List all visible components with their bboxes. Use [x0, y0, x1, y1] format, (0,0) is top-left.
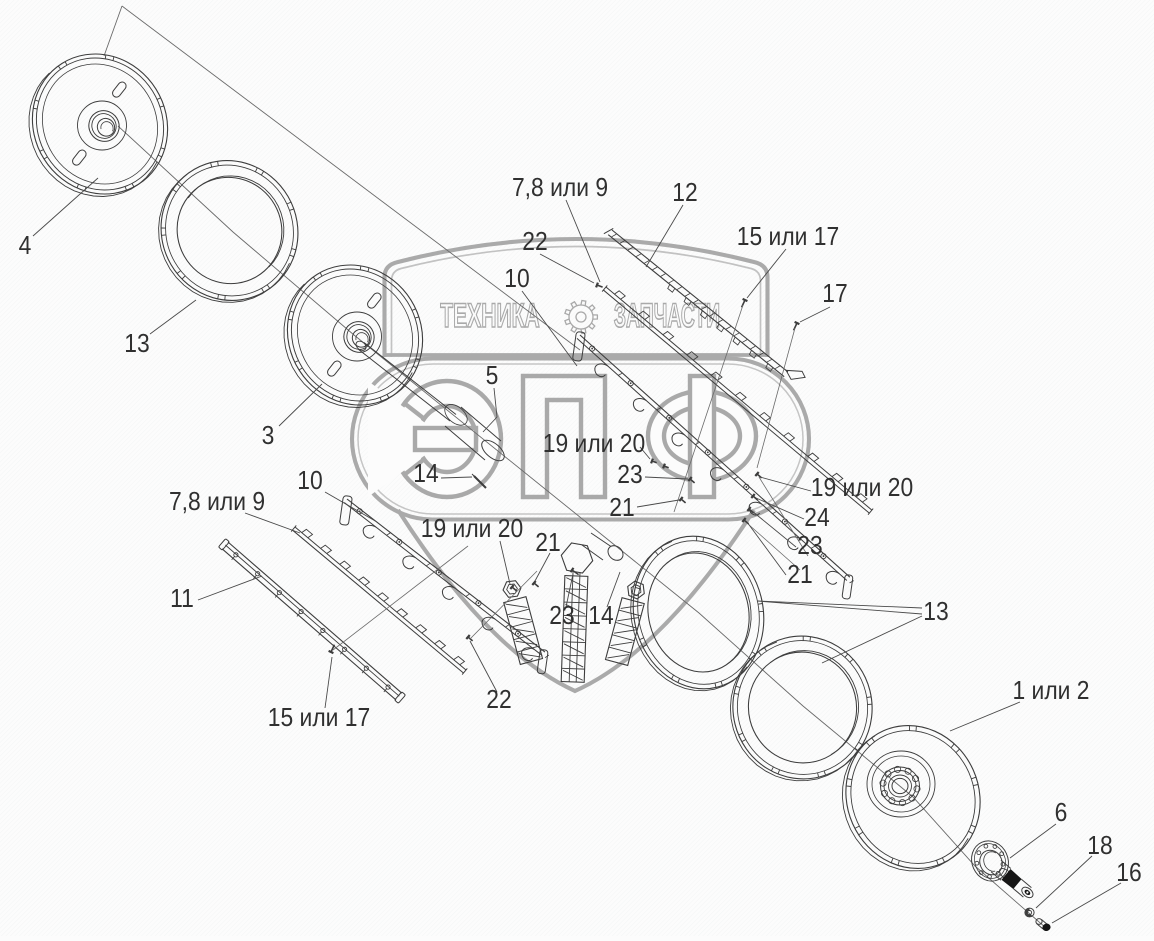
svg-text:15 или 17: 15 или 17 [268, 704, 370, 733]
svg-text:ТЕХНИКА: ТЕХНИКА [440, 296, 539, 334]
svg-text:23: 23 [617, 461, 642, 490]
svg-text:23: 23 [797, 532, 822, 561]
svg-text:1 или 2: 1 или 2 [1012, 677, 1089, 706]
svg-text:ЗАПЧАСТИ: ЗАПЧАСТИ [614, 296, 720, 334]
svg-text:11: 11 [170, 585, 194, 614]
svg-text:19 или 20: 19 или 20 [811, 474, 913, 503]
svg-text:14: 14 [413, 460, 438, 489]
svg-text:18: 18 [1087, 832, 1112, 861]
svg-text:14: 14 [588, 602, 613, 631]
svg-text:17: 17 [822, 280, 847, 309]
svg-text:19 или 20: 19 или 20 [421, 515, 523, 544]
svg-text:13: 13 [923, 598, 948, 627]
svg-text:5: 5 [486, 362, 499, 391]
svg-text:21: 21 [787, 561, 812, 590]
svg-text:4: 4 [19, 232, 32, 261]
svg-text:10: 10 [504, 265, 529, 294]
svg-text:7,8 или 9: 7,8 или 9 [169, 488, 265, 517]
svg-text:16: 16 [1116, 859, 1141, 888]
svg-text:23: 23 [549, 602, 574, 631]
svg-text:21: 21 [609, 494, 634, 523]
svg-text:19 или 20: 19 или 20 [543, 430, 645, 459]
svg-text:7,8 или 9: 7,8 или 9 [512, 174, 608, 203]
svg-text:10: 10 [297, 467, 322, 496]
svg-text:24: 24 [804, 504, 829, 533]
svg-text:22: 22 [522, 228, 547, 257]
svg-text:12: 12 [672, 179, 697, 208]
svg-text:21: 21 [535, 529, 560, 558]
svg-text:6: 6 [1055, 799, 1068, 828]
svg-text:13: 13 [124, 330, 149, 359]
svg-text:15 или 17: 15 или 17 [737, 223, 839, 252]
svg-text:3: 3 [262, 422, 275, 451]
svg-text:22: 22 [486, 686, 511, 715]
